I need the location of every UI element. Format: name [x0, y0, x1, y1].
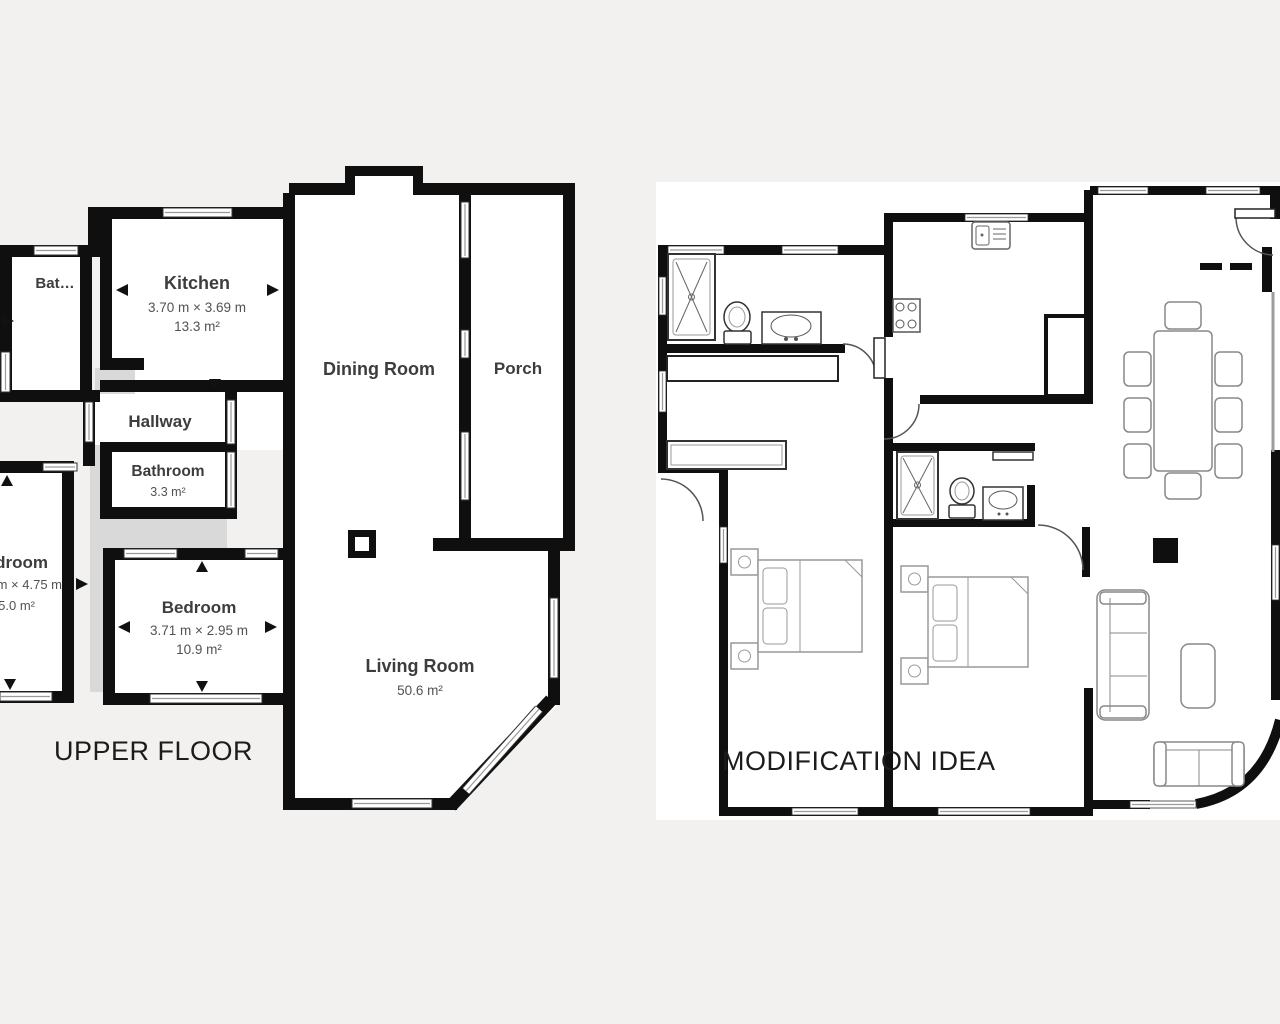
upper-floor-plan: Bat… Kitchen 3.70 m × 3.69 m 13.3 m² Hal… — [0, 166, 575, 810]
toilet-icon — [949, 478, 975, 518]
room-label-living: Living Room — [366, 656, 475, 676]
plans-svg: Bat… Kitchen 3.70 m × 3.69 m 13.3 m² Hal… — [0, 0, 1280, 1024]
nightstand-icon — [901, 658, 928, 684]
room-label-bedroom: Bedroom — [162, 598, 237, 617]
shower-icon — [897, 452, 938, 519]
column-icon — [348, 530, 376, 558]
shelf — [993, 452, 1033, 460]
chair-icon — [1165, 302, 1201, 329]
room-area-living: 50.6 m² — [397, 683, 443, 698]
room-area-bedroom: 10.9 m² — [176, 642, 222, 657]
closet — [1046, 316, 1086, 396]
door-leaf — [874, 338, 885, 378]
room-label-porch: Porch — [494, 359, 542, 378]
upper-floor-title: UPPER FLOOR — [54, 736, 253, 767]
loveseat-icon — [1154, 742, 1244, 786]
stove-icon — [893, 299, 920, 332]
room-dim-bedroom-cut: m × 4.75 m — [0, 577, 62, 592]
nightstand-icon — [901, 566, 928, 592]
sofa-icon — [1097, 590, 1149, 720]
washer-icon — [972, 222, 1010, 249]
modification-plan — [656, 182, 1280, 820]
room-label-kitchen: Kitchen — [164, 273, 230, 293]
chair-icon — [1124, 398, 1151, 432]
door-leaf — [1235, 209, 1275, 218]
column-icon — [1153, 538, 1178, 563]
toilet-icon — [724, 302, 751, 344]
room-label-hallway: Hallway — [128, 412, 192, 431]
chair-icon — [1215, 352, 1242, 386]
sink-vanity-icon — [983, 487, 1023, 520]
room-dim-bedroom: 3.71 m × 2.95 m — [150, 623, 248, 638]
nightstand-icon — [731, 643, 758, 669]
chair-icon — [1124, 352, 1151, 386]
nightstand-icon — [731, 549, 758, 575]
chair-icon — [1165, 473, 1201, 499]
room-area-bathroom: 3.3 m² — [150, 485, 185, 499]
modification-idea-title: MODIFICATION IDEA — [722, 746, 996, 777]
room-area-kitchen: 13.3 m² — [174, 319, 220, 334]
chair-icon — [1215, 444, 1242, 478]
wardrobe-icon — [667, 441, 786, 469]
counter — [667, 356, 838, 381]
room-area-bedroom-cut: 5.0 m² — [0, 598, 36, 613]
room-label-bathroom-small: Bat… — [35, 275, 74, 292]
room-dim-kitchen: 3.70 m × 3.69 m — [148, 300, 246, 315]
chair-icon — [1215, 398, 1242, 432]
shower-icon — [668, 254, 715, 340]
room-label-bathroom: Bathroom — [131, 463, 204, 480]
room-label-bedroom-cut: droom — [0, 553, 48, 572]
floor-plan-canvas: Bat… Kitchen 3.70 m × 3.69 m 13.3 m² Hal… — [0, 0, 1280, 1024]
coffee-table-icon — [1181, 644, 1215, 708]
chair-icon — [1124, 444, 1151, 478]
sink-vanity-icon — [762, 312, 821, 344]
room-label-dining: Dining Room — [323, 359, 435, 379]
